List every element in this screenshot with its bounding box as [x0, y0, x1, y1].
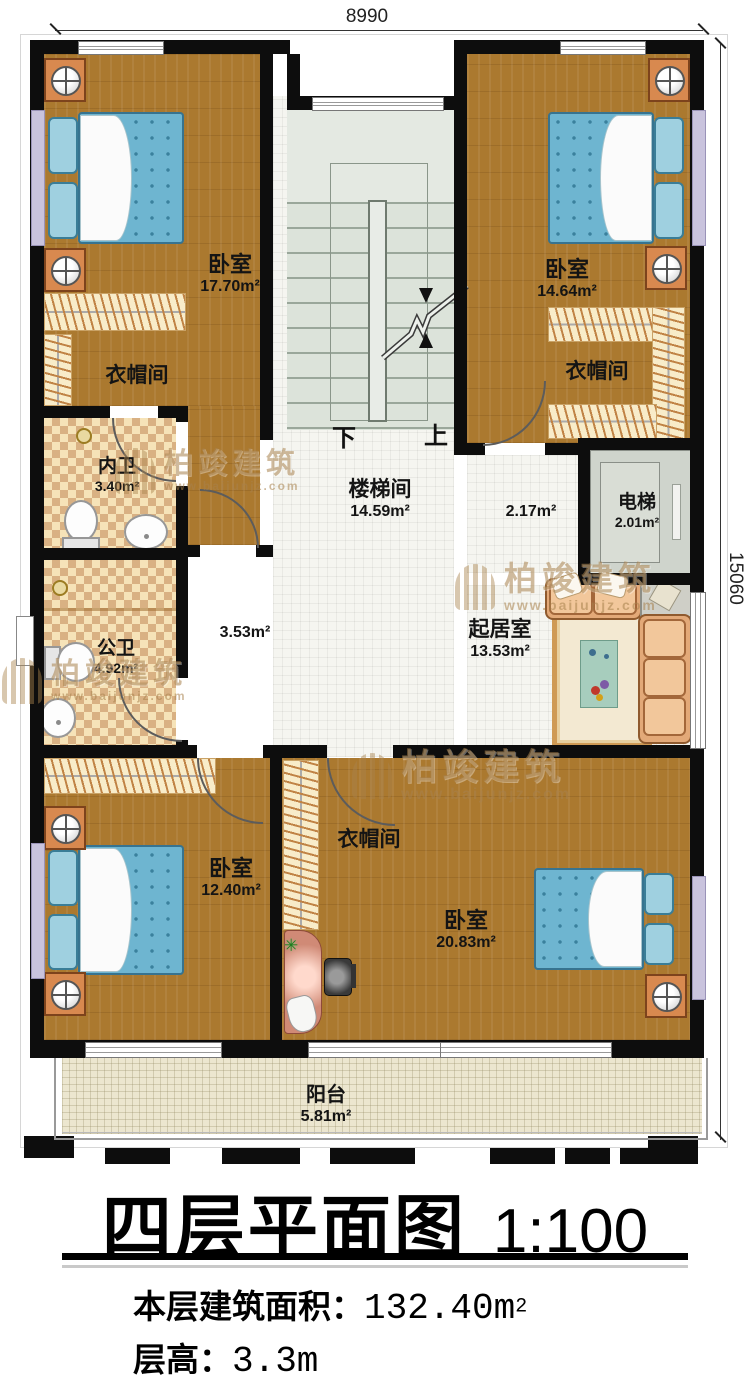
fan-icon [51, 66, 81, 96]
bed-blanket [588, 871, 642, 967]
footing-dash [620, 1148, 698, 1164]
bed-pillow [48, 182, 78, 239]
window-sill [31, 843, 45, 979]
bed [534, 868, 678, 970]
wall [393, 745, 704, 758]
closet-rack [44, 334, 72, 406]
sofa-cushion [643, 619, 686, 658]
wall [176, 545, 200, 557]
room-label-bath-private: 内卫 3.40m² [95, 456, 139, 495]
sink [40, 698, 76, 738]
bed-pillow [644, 873, 674, 915]
window [312, 97, 444, 111]
dimension-line-right [720, 44, 721, 1140]
monitor-stand [351, 964, 356, 988]
bed-blanket [600, 115, 652, 241]
window [440, 1042, 612, 1058]
floor-plan: ✳ [0, 0, 750, 1384]
room-label-balcony: 阳台 5.81m² [301, 1084, 352, 1126]
computer-monitor [324, 958, 352, 996]
room-label-cloak-bottom: 衣帽间 [338, 828, 401, 853]
sofa-cushion [643, 697, 686, 736]
fan-icon [51, 256, 81, 286]
bed [548, 112, 688, 244]
wall [270, 757, 282, 1040]
plant-icon: ✳ [284, 936, 298, 956]
closet-rack [44, 758, 216, 794]
title-underline [62, 1253, 688, 1260]
bed-pillow [654, 182, 684, 239]
wall [176, 486, 188, 678]
wall [454, 443, 485, 455]
window-sill [692, 110, 706, 246]
wall [454, 96, 467, 443]
wall-fixture [16, 616, 34, 666]
wall [260, 54, 273, 440]
wall [30, 745, 197, 758]
fan-icon [655, 66, 685, 96]
window [560, 41, 646, 55]
title-underline-thin [62, 1265, 688, 1268]
wall [30, 406, 110, 418]
bed-pillow [654, 117, 684, 174]
room-label-cloak-tr: 衣帽间 [566, 360, 629, 385]
balcony-rail-inner [62, 1132, 702, 1133]
bed [44, 845, 184, 975]
wall [176, 406, 188, 422]
wall [545, 443, 578, 455]
stair-up-label: 上 [424, 416, 448, 451]
nightstand [648, 58, 690, 102]
balcony-rail [706, 1058, 708, 1140]
nightstand [44, 972, 86, 1016]
area-label-hall-right: 2.17m² [506, 503, 557, 522]
closet-rack [548, 307, 657, 342]
fan-icon [51, 814, 81, 844]
window-sill [31, 110, 45, 246]
wall [590, 438, 704, 450]
bed-pillow [644, 923, 674, 965]
nightstand [44, 806, 86, 850]
room-label-stairwell: 楼梯间 14.59m² [349, 478, 412, 522]
wall [578, 438, 590, 585]
bed-pillow [48, 117, 78, 174]
closet-rack [548, 404, 657, 439]
footing-dash [565, 1148, 610, 1164]
room-label-bedroom-tr: 卧室 14.64m² [537, 257, 597, 302]
footing-dash [330, 1148, 415, 1164]
dimension-height: 15060 [724, 552, 746, 605]
footing-dash [105, 1148, 170, 1164]
room-label-cloak-tl: 衣帽间 [106, 364, 169, 389]
balcony-rail [54, 1138, 708, 1140]
floor-area-line: 本层建筑面积：132.40m2 [133, 1280, 527, 1329]
bed [44, 112, 184, 244]
room-label-bedroom-bl: 卧室 12.40m² [201, 856, 261, 901]
ceiling-lamp [76, 428, 92, 444]
closet-rack [44, 293, 186, 331]
window-sill [692, 876, 706, 1000]
window [85, 1042, 222, 1058]
floor-height-line: 层高：3.3m [133, 1333, 318, 1382]
bed-blanket [80, 115, 132, 241]
room-label-living: 起居室 13.53m² [469, 618, 532, 662]
bed-pillow [48, 850, 78, 906]
dimension-width: 8990 [327, 6, 407, 28]
sofa-cushion [643, 658, 686, 697]
ceiling-lamp [52, 580, 68, 596]
room-label-bath-public: 公卫 4.92m² [94, 638, 138, 677]
floor-balcony [62, 1058, 702, 1134]
bath-shelf [44, 608, 176, 611]
balcony-rail [54, 1058, 56, 1140]
bed-pillow [48, 914, 78, 970]
nightstand [645, 974, 687, 1018]
footing-dash [222, 1148, 300, 1164]
wall [30, 548, 176, 560]
footing-dash [490, 1148, 555, 1164]
toilet [64, 500, 98, 542]
room-label-bedroom-tl: 卧室 17.70m² [200, 252, 260, 297]
dimension-line-top [55, 30, 703, 31]
closet-rack [283, 760, 319, 930]
fan-icon [51, 980, 81, 1010]
room-label-bedroom-br: 卧室 20.83m² [436, 908, 496, 953]
room-label-elevator: 电梯 2.01m² [615, 492, 659, 531]
wall [158, 406, 176, 418]
window [690, 592, 706, 749]
elevator-door [672, 484, 681, 540]
sink [124, 514, 168, 550]
nightstand [645, 246, 687, 290]
fan-icon [652, 982, 682, 1012]
stair-down-label: 下 [332, 418, 356, 453]
rug-center [580, 640, 618, 708]
bed-blanket [80, 848, 132, 972]
window [308, 1042, 442, 1058]
window [78, 41, 164, 55]
nightstand [44, 248, 86, 292]
toilet [57, 642, 95, 682]
fan-icon [652, 254, 682, 284]
nightstand [44, 58, 86, 102]
area-label-hall-left: 3.53m² [220, 624, 271, 643]
